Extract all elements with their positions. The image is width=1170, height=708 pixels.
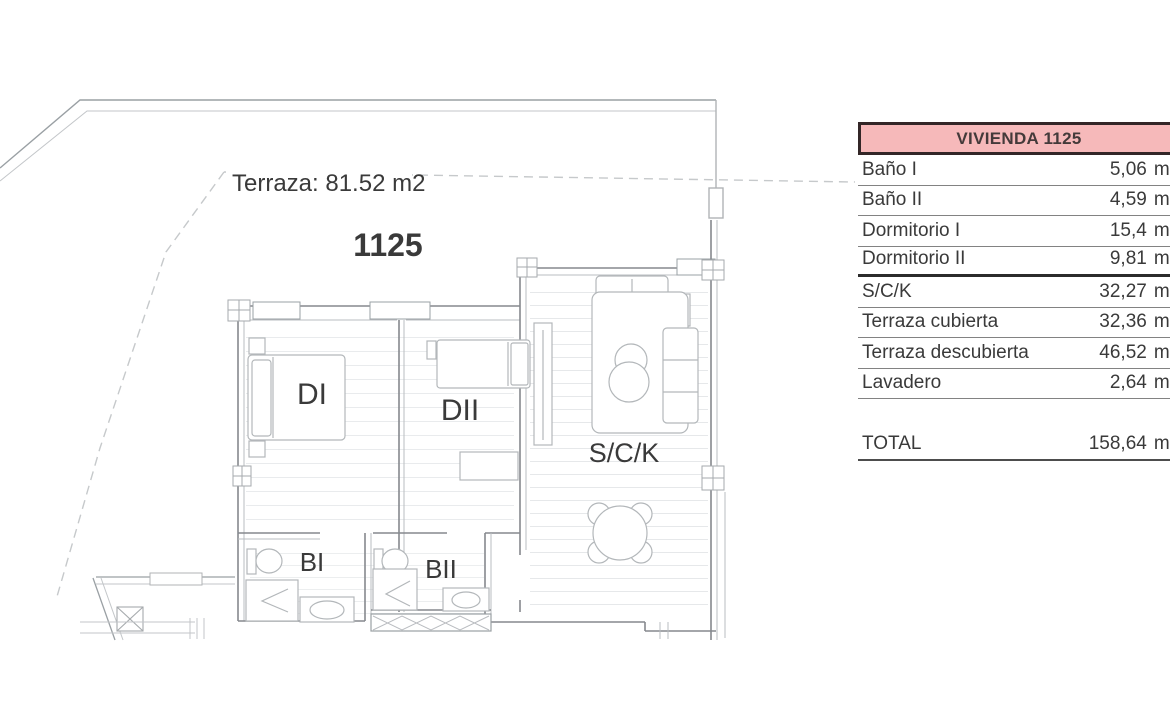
row-value: 2,64m² xyxy=(1110,372,1170,394)
unit-suffix: m² xyxy=(1154,248,1170,269)
room-label-dormitorio2: DII xyxy=(441,394,479,427)
row-label: Dormitorio I xyxy=(862,220,960,242)
shower-icon-bi xyxy=(246,580,298,621)
room-label-salon-cocina: S/C/K xyxy=(589,438,660,468)
table-row: Terraza descubierta 46,52m² xyxy=(858,338,1170,369)
terrace-outer-boundary xyxy=(0,100,723,218)
unit-suffix: m² xyxy=(1154,281,1170,302)
table-row: Lavadero 2,64m² xyxy=(858,369,1170,400)
room-label-bano1: BI xyxy=(300,547,325,577)
row-label: Terraza cubierta xyxy=(862,311,998,333)
table-row: Baño II 4,59m² xyxy=(858,186,1170,217)
row-value: 46,52m² xyxy=(1099,342,1170,364)
desk-icon xyxy=(460,452,518,480)
shower-icon-bii xyxy=(373,569,417,610)
sofa-icon xyxy=(592,292,698,433)
area-summary-table: VIVIENDA 1125 Baño I 5,06m² Baño II 4,59… xyxy=(858,122,1170,461)
table-row: Dormitorio I 15,4m² xyxy=(858,216,1170,247)
row-value: 15,4m² xyxy=(1110,220,1170,242)
unit-suffix: m² xyxy=(1154,220,1170,241)
toilet-icon-bi xyxy=(247,549,282,574)
unit-suffix: m² xyxy=(1154,159,1170,180)
table-title-text: VIVIENDA 1125 xyxy=(956,129,1081,149)
table-title: VIVIENDA 1125 xyxy=(858,122,1170,155)
unit-suffix: m² xyxy=(1154,311,1170,332)
unit-number-label: 1125 xyxy=(353,227,422,263)
table-row: S/C/K 32,27m² xyxy=(858,277,1170,308)
row-label: Baño I xyxy=(862,159,917,181)
floor-plan-drawing: Terraza: 81.52 m2 1125 DI DII S/C/K BI B… xyxy=(0,0,860,708)
room-label-dormitorio1: DI xyxy=(297,378,327,411)
row-label: S/C/K xyxy=(862,281,912,303)
row-label: Lavadero xyxy=(862,372,941,394)
terrace-parapet xyxy=(80,573,235,640)
room-label-bano2: BII xyxy=(425,554,457,584)
wardrobe-icon xyxy=(534,323,552,445)
row-value: 5,06m² xyxy=(1110,159,1170,181)
table-row: Dormitorio II 9,81m² xyxy=(858,247,1170,278)
floor-plan-sheet: { "floor_plan": { "terrace_label": "Terr… xyxy=(0,0,1170,708)
row-label: Terraza descubierta xyxy=(862,342,1029,364)
row-value: 9,81m² xyxy=(1110,248,1170,270)
lavadero-sill xyxy=(371,614,491,631)
dining-table-icon xyxy=(588,503,652,563)
total-label: TOTAL xyxy=(862,433,921,455)
table-row: Terraza cubierta 32,36m² xyxy=(858,308,1170,339)
row-value: 32,27m² xyxy=(1099,281,1170,303)
sink-icon-bii xyxy=(443,588,489,611)
row-value: 32,36m² xyxy=(1099,311,1170,333)
bed-icon-dii xyxy=(427,340,530,388)
terrace-area-label: Terraza: 81.52 m2 xyxy=(232,170,425,197)
unit-suffix: m² xyxy=(1154,372,1170,393)
unit-suffix: m² xyxy=(1154,433,1170,454)
unit-suffix: m² xyxy=(1154,342,1170,363)
row-label: Dormitorio II xyxy=(862,248,965,270)
sink-icon-bi xyxy=(300,597,354,622)
column-x-marker xyxy=(117,607,143,631)
row-value: 4,59m² xyxy=(1110,189,1170,211)
row-label: Baño II xyxy=(862,189,922,211)
table-total-row: TOTAL 158,64m² xyxy=(858,430,1170,461)
table-row: Baño I 5,06m² xyxy=(858,155,1170,186)
unit-suffix: m² xyxy=(1154,189,1170,210)
total-value: 158,64m² xyxy=(1089,433,1170,455)
